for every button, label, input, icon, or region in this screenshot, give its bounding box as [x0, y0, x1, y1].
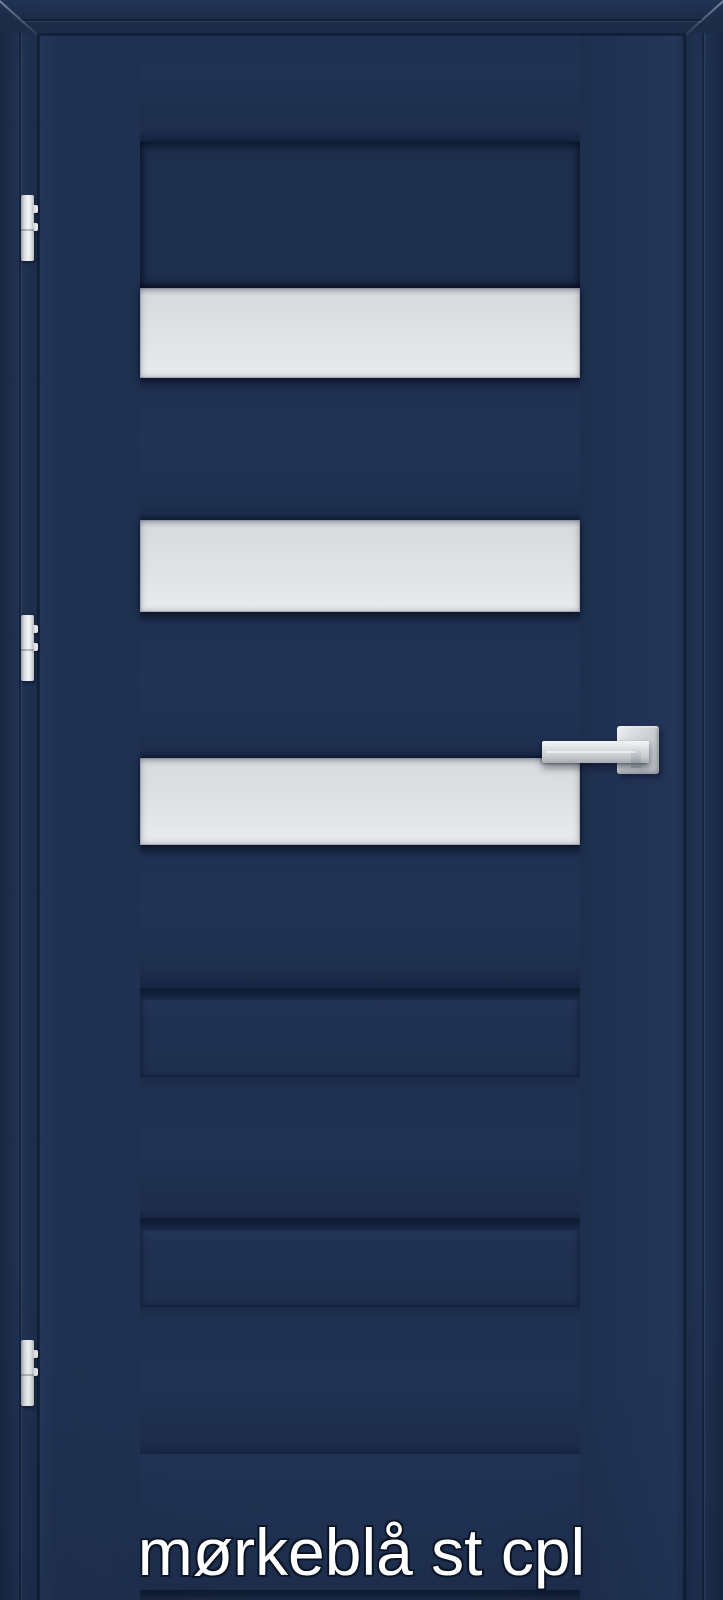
door-gap-top	[37, 33, 686, 36]
door-handle-lever	[542, 741, 649, 763]
panel-groove-1	[140, 988, 580, 1000]
hinge-pin	[33, 625, 38, 633]
hinge-pin	[33, 223, 38, 231]
door-frame-top	[0, 0, 723, 33]
panel-groove-3	[140, 1590, 580, 1600]
hinge-middle	[21, 615, 34, 681]
door-top-rail	[140, 33, 580, 140]
door-center-column	[140, 33, 580, 1600]
door-frame-right	[686, 33, 723, 1600]
hinge-pin	[33, 205, 38, 213]
glass-panel-3	[140, 758, 580, 845]
door-gap-right	[683, 33, 686, 1600]
frame-bead-line	[702, 33, 704, 1600]
door-recessed-panel-top	[140, 140, 580, 288]
product-label: mørkeblå st cpl	[0, 1516, 723, 1589]
hinge-pin	[33, 1350, 38, 1358]
door-rail-3	[140, 845, 580, 988]
hinge-top	[21, 195, 34, 261]
door-stile-right	[580, 33, 683, 1600]
door-rail-4	[140, 1077, 580, 1218]
door-rail-2	[140, 612, 580, 758]
hinge-bottom	[21, 1340, 34, 1406]
door-rail-1	[140, 378, 580, 520]
door-rail-5	[140, 1307, 580, 1452]
frame-bead-line	[20, 19, 703, 21]
hinge-pin	[33, 1368, 38, 1376]
door-stile-left	[40, 33, 140, 1600]
hinge-pin	[33, 643, 38, 651]
glass-panel-2	[140, 520, 580, 612]
door-product-photo: mørkeblå st cpl	[0, 0, 723, 1600]
glass-panel-1	[140, 288, 580, 378]
recessed-strip-2	[140, 1230, 580, 1307]
door-gap-left	[37, 33, 40, 1600]
recessed-strip-1	[140, 1000, 580, 1077]
door-leaf	[40, 33, 683, 1600]
panel-groove-2	[140, 1218, 580, 1230]
